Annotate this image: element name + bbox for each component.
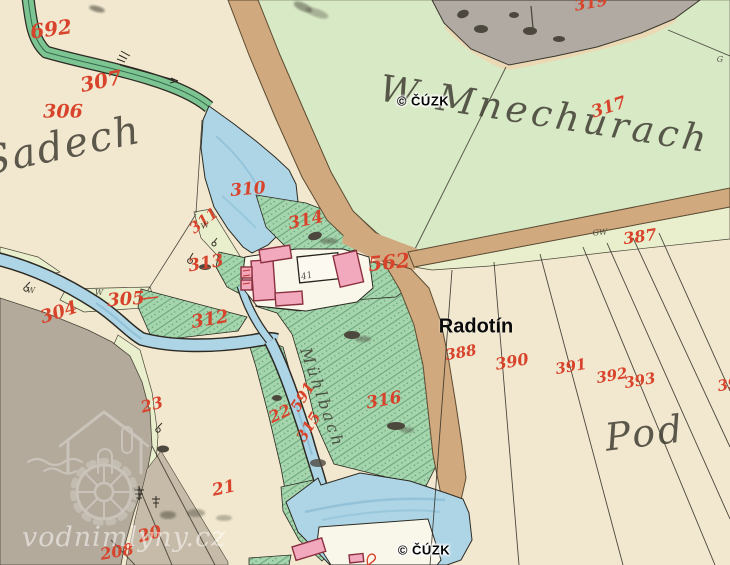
cuzk-copyright-top: © ČÚZK bbox=[397, 94, 449, 109]
radotin-place-label: Radotín bbox=[439, 316, 513, 339]
vodnimlyny-watermark-text: vodnimlyny.cz bbox=[22, 522, 226, 553]
cuzk-copyright-bottom: © ČÚZK bbox=[398, 543, 450, 558]
cadastral-map-viewport[interactable]: W MnechurachSadechPodMühlbach69230730631… bbox=[0, 0, 730, 565]
cadastral-map-canvas bbox=[0, 0, 730, 565]
